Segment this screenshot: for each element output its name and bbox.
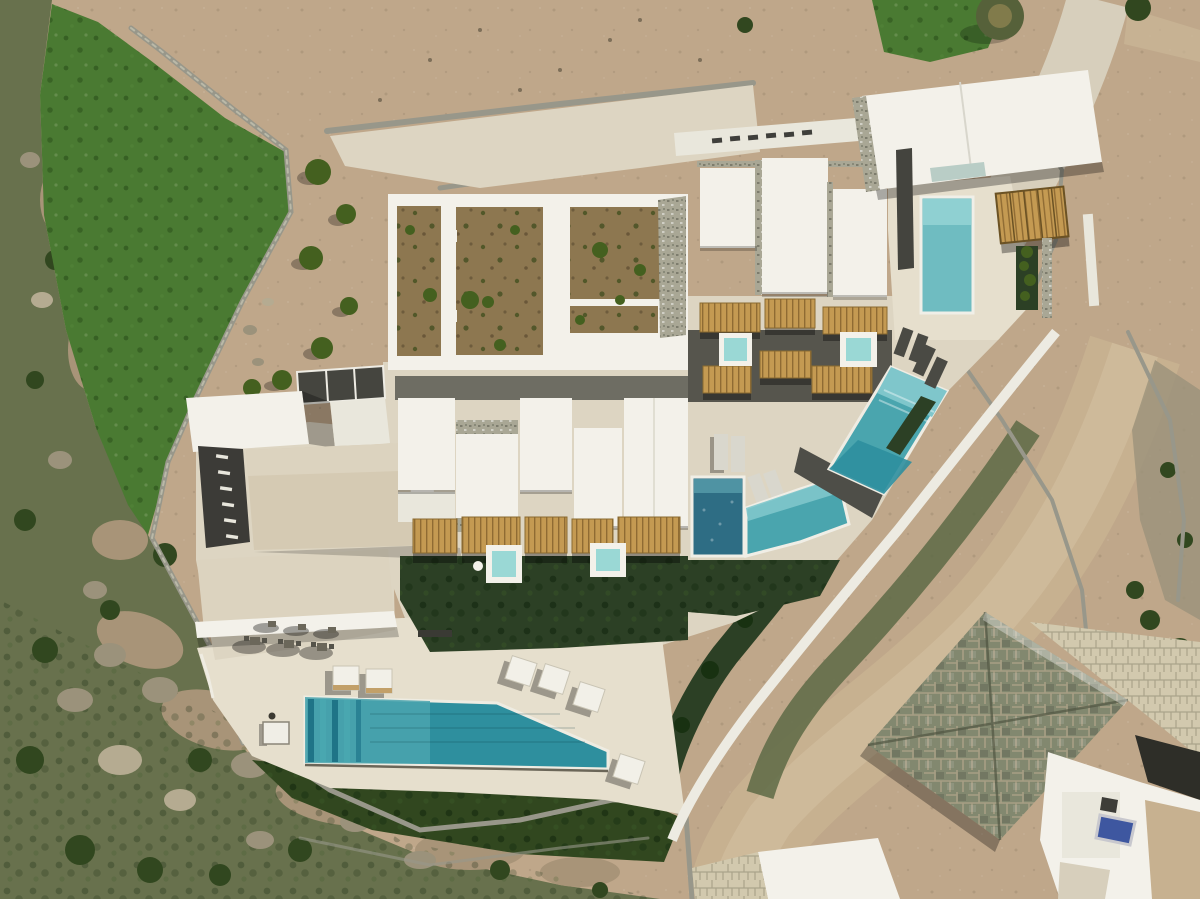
patio-table: [473, 561, 483, 571]
pool-plunge-navy: [692, 477, 744, 556]
aerial-photo: [0, 0, 1200, 899]
roof-b1: [700, 168, 757, 248]
roof-d3: [520, 398, 572, 492]
roof-d1b: [398, 492, 455, 522]
dark-wall-band: [896, 148, 914, 270]
plunge-pool-1: [486, 545, 522, 583]
roof-b1-shadow: [700, 246, 757, 251]
pergola-row-shadows: [413, 553, 680, 563]
neighbor-patio-tan: [1145, 800, 1200, 899]
deck-grate: [418, 630, 452, 637]
pool-northeast: [921, 197, 973, 313]
planter-northeast: [1016, 238, 1052, 318]
plunge-pool-2: [590, 543, 626, 577]
stone-trim-b2: [827, 182, 833, 297]
roof-d4: [574, 428, 622, 528]
roof-b2-shadow: [762, 292, 828, 297]
solar-panel: [1096, 815, 1135, 845]
roof-d5: [624, 398, 688, 528]
roof-b3-shadow: [833, 295, 887, 300]
roof-d2: [456, 434, 518, 518]
roof-b3: [833, 189, 887, 297]
pergola-northeast: [996, 187, 1070, 254]
roof-d2-trim-top: [456, 420, 518, 434]
aerial-photo-canvas: [0, 0, 1200, 899]
parking-strip: [198, 446, 250, 548]
jacuzzi-2: [840, 332, 877, 367]
garden-stone-corner: [658, 196, 686, 338]
stone-trim-b1: [755, 160, 762, 295]
north-shadow-band: [395, 376, 688, 400]
hedge-texture: [400, 556, 688, 652]
service-roof-a: [186, 391, 309, 452]
garden: [388, 194, 688, 370]
shrub: [737, 17, 753, 33]
pergola-row: [413, 517, 680, 553]
jacuzzi-1: [719, 333, 752, 366]
roof-b2: [762, 158, 828, 294]
service-roof-b: [330, 398, 390, 448]
roof-d1: [398, 398, 455, 490]
